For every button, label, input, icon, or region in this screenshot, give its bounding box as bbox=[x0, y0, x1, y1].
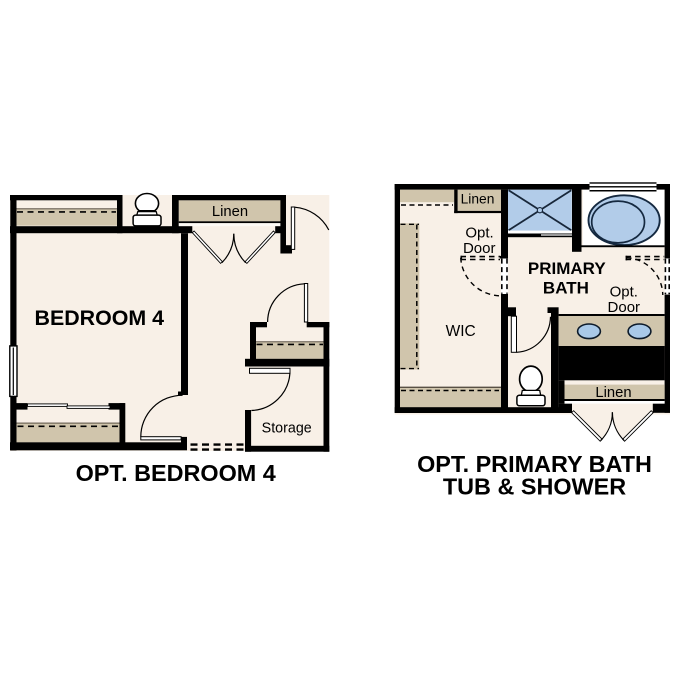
svg-text:Storage: Storage bbox=[262, 420, 312, 436]
svg-text:Door: Door bbox=[463, 240, 496, 257]
svg-text:WIC: WIC bbox=[446, 323, 476, 340]
svg-text:Door: Door bbox=[608, 299, 641, 316]
svg-text:Opt.: Opt. bbox=[610, 283, 638, 300]
svg-text:Linen: Linen bbox=[212, 204, 248, 220]
svg-text:PRIMARY: PRIMARY bbox=[528, 259, 606, 278]
svg-text:Linen: Linen bbox=[461, 192, 495, 207]
svg-text:Linen: Linen bbox=[595, 385, 631, 401]
svg-text:BEDROOM 4: BEDROOM 4 bbox=[35, 306, 165, 330]
svg-text:TUB & SHOWER: TUB & SHOWER bbox=[443, 473, 626, 499]
svg-text:BATH: BATH bbox=[543, 279, 589, 298]
svg-text:OPT. BEDROOM 4: OPT. BEDROOM 4 bbox=[76, 460, 276, 486]
